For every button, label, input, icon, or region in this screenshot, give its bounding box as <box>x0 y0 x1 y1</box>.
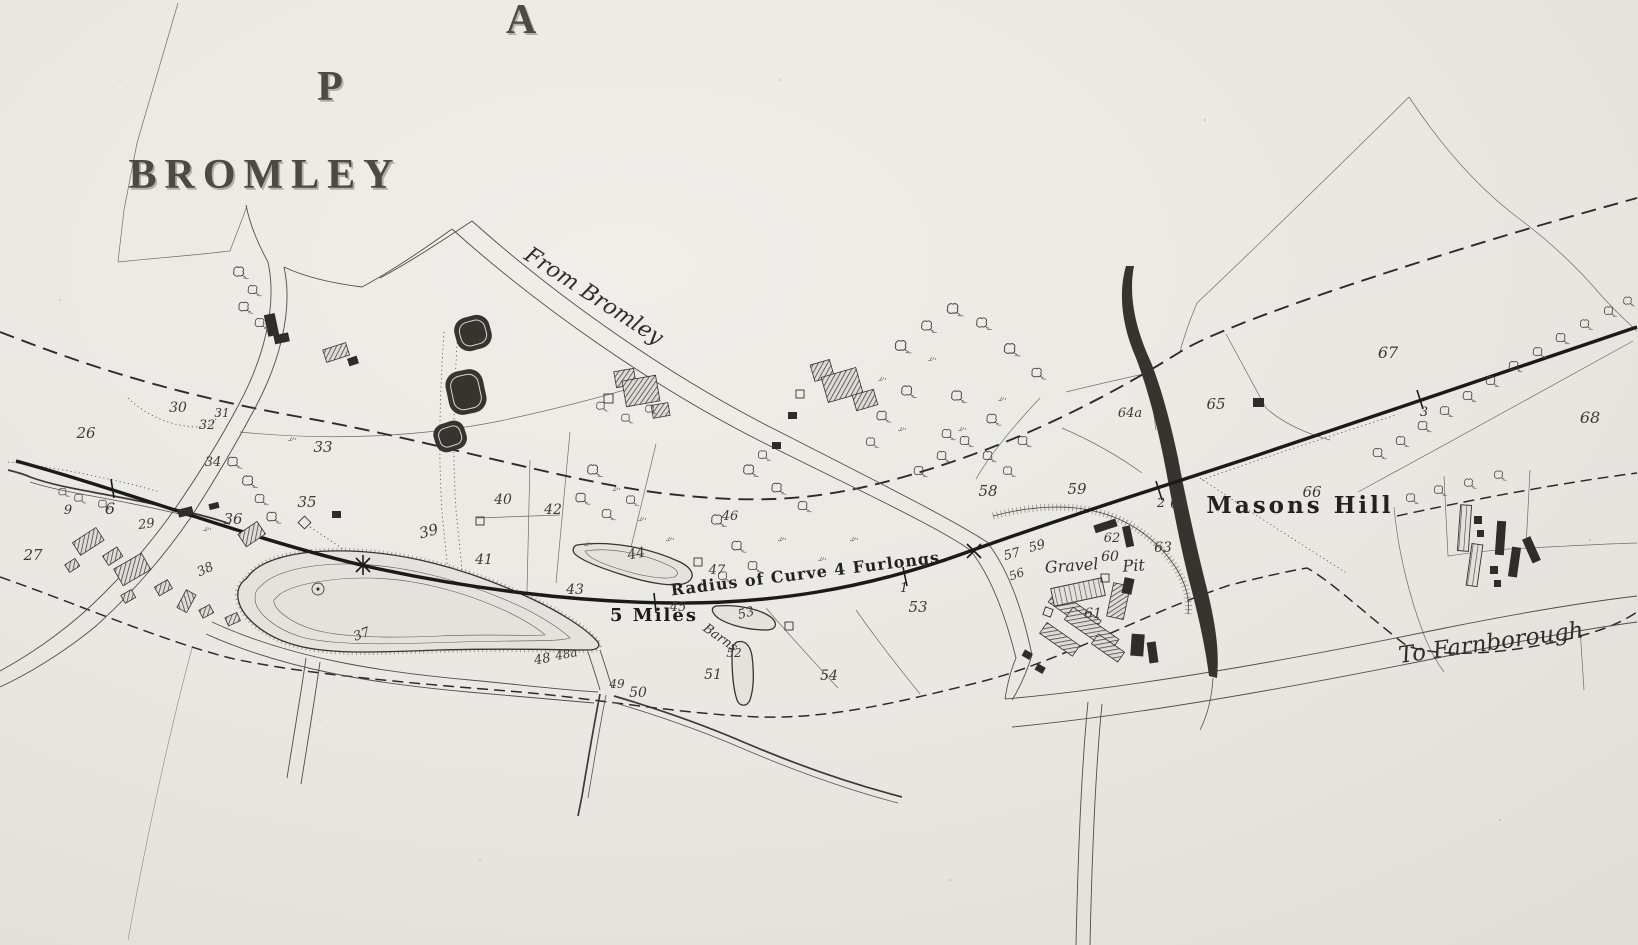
parcel-54: 54 <box>820 668 838 684</box>
parcel-51: 51 <box>704 667 722 683</box>
parcel-42: 42 <box>543 502 562 518</box>
parcel-41: 41 <box>474 552 493 568</box>
parcel-32: 32 <box>199 418 216 433</box>
parcel-48: 48 <box>532 651 552 669</box>
parcel-64: 64 <box>1170 496 1188 512</box>
parcel-59: 59 <box>1067 480 1087 498</box>
parcel-46: 46 <box>721 509 739 524</box>
label-masons-hill: Masons Hill <box>1206 492 1393 519</box>
parcel-63: 63 <box>1154 540 1172 556</box>
parcel-26: 26 <box>75 424 96 442</box>
parcel-58: 58 <box>978 482 997 500</box>
paper-background <box>0 0 1638 945</box>
map-letter-p: P <box>317 64 343 110</box>
label-bromley: BROMLEY <box>128 152 401 198</box>
parcel-44: 44 <box>625 545 646 564</box>
parcel-43: 43 <box>565 582 584 598</box>
parcel-34: 34 <box>205 455 222 470</box>
label-pit: Pit <box>1121 555 1146 576</box>
map-canvas: AAPPBROMLEYBROMLEYFrom BromleyTo Farnbor… <box>0 0 1638 945</box>
parcel-68: 68 <box>1580 408 1600 427</box>
parcel-27: 27 <box>22 546 43 564</box>
parcel-50: 50 <box>629 685 647 701</box>
parcel-33: 33 <box>313 438 332 456</box>
parcel-31: 31 <box>214 406 229 420</box>
parcel-64a: 64a <box>1118 406 1142 421</box>
parcel-30: 30 <box>169 400 187 416</box>
railway-chain-9: 9 <box>64 503 72 518</box>
parcel-36: 36 <box>223 510 243 528</box>
parcel-40: 40 <box>493 492 512 508</box>
parcel-52: 52 <box>726 646 741 660</box>
parcel-49: 49 <box>608 677 625 691</box>
historic-map-bromley: { "map": { "labels": [ {"name":"map-lett… <box>0 0 1638 945</box>
railway-chain-2: 2 <box>1156 496 1165 511</box>
railway-chain-3: 3 <box>1420 405 1428 420</box>
parcel-35: 35 <box>297 493 316 511</box>
bromley-survey-map: AAPPBROMLEYBROMLEYFrom BromleyTo Farnbor… <box>0 0 1638 945</box>
railway-chain-1: 1 <box>900 581 908 596</box>
railway-chain-6: 6 <box>105 499 115 518</box>
map-letter-a: A <box>506 0 537 43</box>
parcel-29: 29 <box>136 516 155 533</box>
parcel-65: 65 <box>1206 395 1225 413</box>
label-gravel: Gravel <box>1044 554 1099 577</box>
parcel-45: 45 <box>669 600 687 615</box>
parcel-53: 53 <box>908 598 927 616</box>
parcel-62: 62 <box>1104 531 1121 546</box>
parcel-67: 67 <box>1378 343 1399 362</box>
parcel-47: 47 <box>708 563 726 578</box>
parcel-66: 66 <box>1302 483 1322 501</box>
label-gravel-pit-60: 60 <box>1101 549 1119 565</box>
parcel-61: 61 <box>1084 606 1102 622</box>
